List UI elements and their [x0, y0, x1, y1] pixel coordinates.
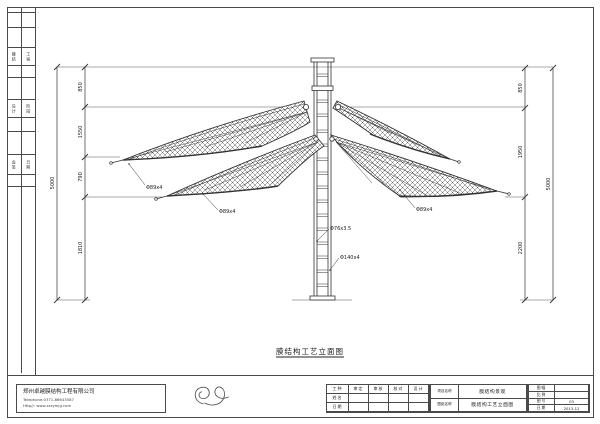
project-name-label: 项目名称	[431, 385, 459, 399]
approval-header: 工种	[327, 385, 349, 394]
approval-table: 工种 审定 审核 校对 设计 姓名 日期	[326, 384, 430, 413]
meta-label: 图号	[529, 399, 555, 406]
project-name-value: 膜结构景观	[459, 385, 527, 399]
cad-sheet: 膜结 工程 设计 阶段 会签 日期	[0, 0, 600, 424]
drawing-title-group: 膜结构工艺立面图	[276, 346, 344, 357]
dimension-lines	[54, 64, 556, 303]
label-wing-left-front: Φ89x4	[219, 209, 235, 215]
meta-value	[555, 385, 589, 392]
label-ladder-rail: Φ76x3.5	[330, 226, 351, 232]
drawing-title: 膜结构工艺立面图	[276, 346, 344, 356]
membrane-elevation-drawing: 5000 850 1550 790 1810 850 1950 2200 500…	[0, 0, 600, 424]
dim-right-seg3: 2200	[518, 242, 524, 255]
dim-left-total: 5000	[50, 177, 56, 190]
reference-lines	[57, 67, 553, 300]
meta-label: 比例	[529, 392, 555, 399]
approval-row-label: 姓名	[327, 394, 349, 403]
drawing-name-value: 膜结构工艺立面图	[459, 399, 527, 413]
meta-value: 2013-12	[555, 405, 589, 412]
dim-right-seg1: 850	[518, 83, 524, 93]
dim-right-total: 5000	[546, 178, 552, 191]
approval-row-label: 日期	[327, 403, 349, 412]
meta-value	[555, 392, 589, 399]
approval-header: 审定	[349, 385, 369, 394]
meta-value: 03	[555, 399, 589, 406]
dim-left-seg2: 1550	[78, 126, 84, 139]
dim-left-seg4: 1810	[78, 242, 84, 255]
label-wing-left-back: Φ89x4	[146, 185, 162, 191]
dim-left-seg3: 790	[78, 172, 84, 182]
company-block: 郑州卓越膜结构工程有限公司 Telephone:0371-86643587 Ht…	[16, 384, 166, 413]
approval-header: 校对	[389, 385, 409, 394]
approval-header: 设计	[409, 385, 429, 394]
dim-left-seg1: 850	[78, 82, 84, 92]
meta-label: 日期	[529, 405, 555, 412]
company-website: Http//: www.zzzymjg.com	[23, 403, 165, 409]
label-wing-right-front: Φ89x4	[416, 207, 432, 213]
label-mast: Φ140x4	[340, 255, 360, 261]
approval-header: 审核	[369, 385, 389, 394]
dim-right-seg2: 1950	[518, 146, 524, 159]
drawing-name-label: 图纸名称	[431, 399, 459, 413]
membrane-wings	[110, 101, 511, 200]
company-name: 郑州卓越膜结构工程有限公司	[23, 388, 165, 397]
name-table: 项目名称 膜结构景观 图纸名称 膜结构工艺立面图	[430, 384, 528, 413]
company-logo-icon	[188, 380, 240, 412]
meta-table: 图幅 比例 图号 03 日期 2013-12	[528, 384, 590, 413]
mast-ladder	[310, 58, 335, 300]
meta-label: 图幅	[529, 385, 555, 392]
